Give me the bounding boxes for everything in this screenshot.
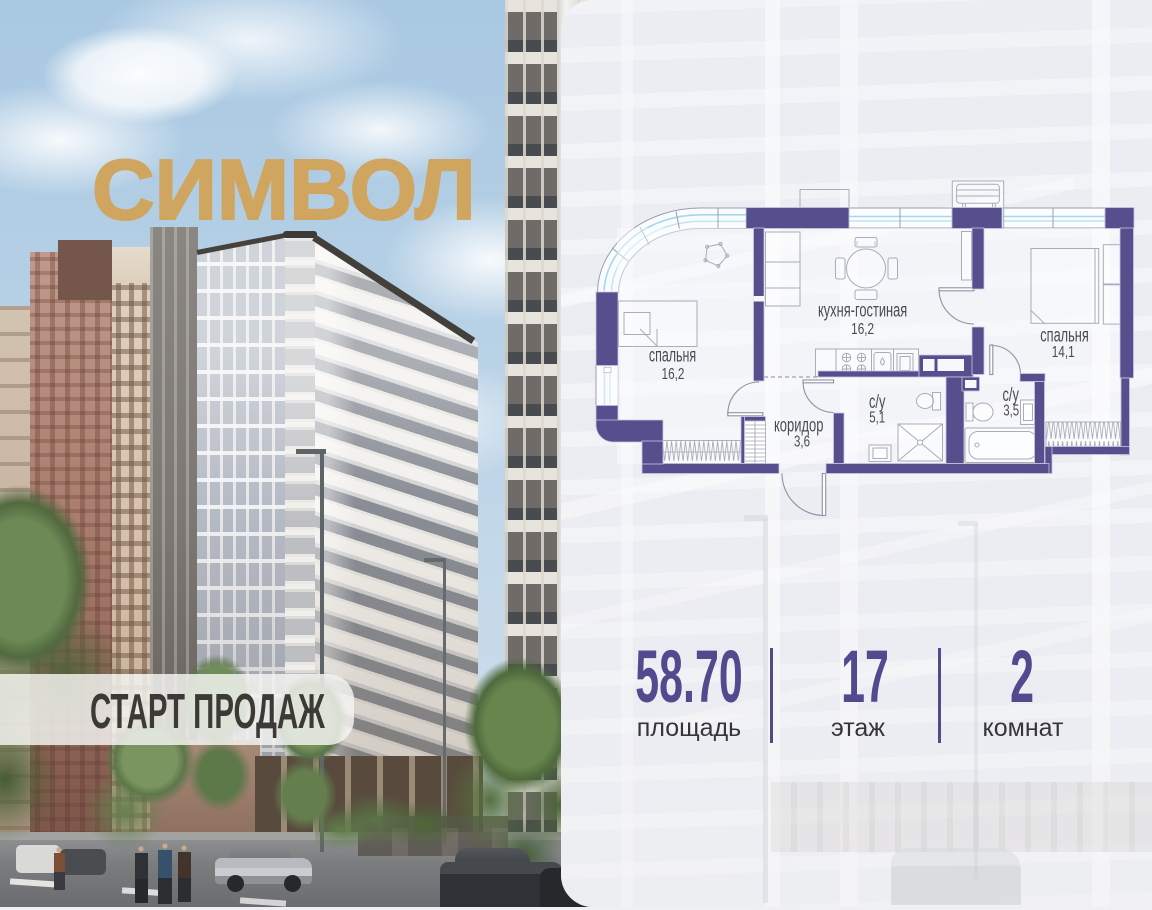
svg-text:16,2: 16,2 <box>851 320 874 337</box>
svg-text:спальня: спальня <box>649 345 696 366</box>
svg-text:3,5: 3,5 <box>1003 402 1019 419</box>
svg-text:кухня-гостиная: кухня-гостиная <box>818 299 907 321</box>
svg-text:5,1: 5,1 <box>869 409 885 426</box>
svg-text:16,2: 16,2 <box>662 366 685 383</box>
svg-text:14,1: 14,1 <box>1052 343 1075 360</box>
svg-text:3,6: 3,6 <box>794 433 810 450</box>
